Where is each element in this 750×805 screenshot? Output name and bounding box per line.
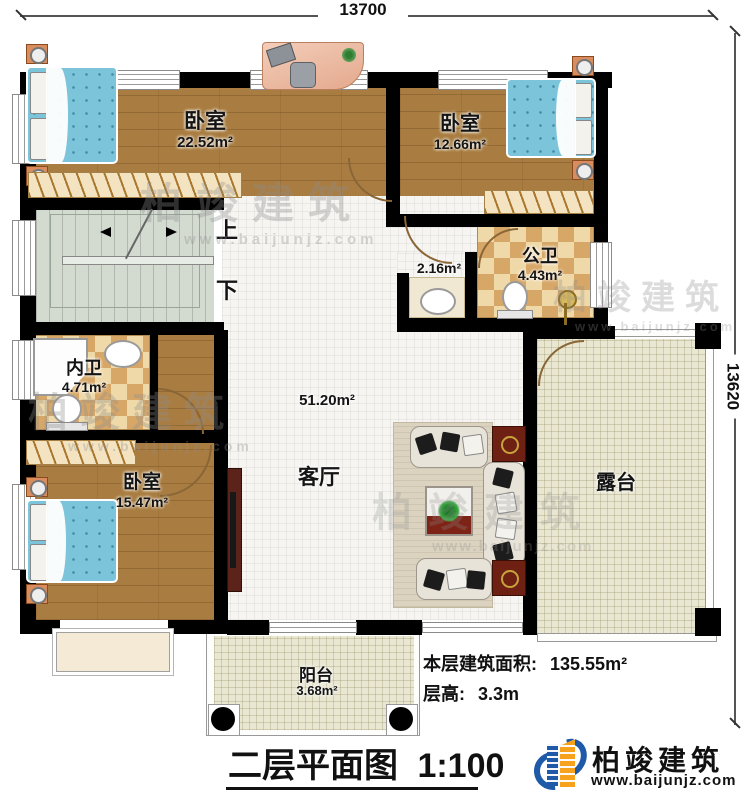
balcony-post <box>389 707 413 731</box>
bed-bottom-left <box>26 499 118 583</box>
balcony-sliding-door <box>269 622 357 633</box>
watermark-url: www.baijunjz.com <box>184 231 377 248</box>
logo-icon <box>534 736 586 794</box>
watermark: 柏竣建筑 www.baijunjz.com <box>553 270 735 334</box>
terrace-label: 露台 <box>592 472 640 495</box>
title-scale: 1:100 <box>417 747 504 785</box>
wall-living-left <box>214 330 228 634</box>
watermark-url: www.baijunjz.com <box>575 319 735 334</box>
dimension-width-label: 13700 <box>318 0 408 17</box>
floor-height-note: 层高: 3.3m <box>423 680 519 706</box>
side-table-top <box>492 426 526 462</box>
bed-sheet <box>556 80 576 156</box>
pillow <box>574 120 592 155</box>
toilet-tank-public <box>497 310 533 319</box>
sofa-top <box>410 426 488 468</box>
balcony-post <box>211 707 235 731</box>
floor-area-note: 本层建筑面积: 135.55m² <box>423 650 627 676</box>
desk-plant <box>342 48 356 62</box>
balcony-post-frame <box>208 704 240 736</box>
bay-window <box>56 632 170 672</box>
watermark: 柏竣建筑 www.baijunjz.com <box>28 380 253 454</box>
wall-living-bottom-left <box>227 620 269 635</box>
bedroom-top-left-label: 卧室 22.52m² <box>140 110 270 151</box>
room-name: 内卫 <box>38 358 130 379</box>
desk-chair <box>290 62 316 88</box>
logo-building-orange <box>560 739 575 787</box>
wardrobe-bedroom2 <box>484 190 594 214</box>
watermark-url: www.baijunjz.com <box>68 438 253 454</box>
living-bottom-window <box>422 622 523 633</box>
floor-area-label: 本层建筑面积: <box>423 654 537 674</box>
room-name: 卧室 <box>400 113 520 136</box>
title-text: 二层平面图 <box>228 747 398 785</box>
side-table-bottom <box>492 560 526 596</box>
wall-bedroom3-bottom-left <box>20 620 60 634</box>
watermark-url: www.baijunjz.com <box>432 538 596 555</box>
nightstand <box>572 160 594 180</box>
living-room-area-label: 51.20m² <box>286 392 368 409</box>
floor-height-label: 层高: <box>423 684 465 704</box>
floor-area-value: 135.55m² <box>550 654 627 674</box>
nightstand <box>572 56 594 76</box>
bedroom-bottom-left-label: 卧室 15.47m² <box>92 472 192 510</box>
bed-sheet <box>46 68 68 162</box>
toilet-bowl-public <box>502 281 528 313</box>
hall-area-label: 2.16m² <box>404 260 474 276</box>
dimension-height-label: 13620 <box>726 355 743 419</box>
logo-url: www.baijunjz.com <box>591 772 736 789</box>
stair-handrail <box>62 256 214 265</box>
room-area: 15.47m² <box>92 494 192 510</box>
wall-living-bottom-right <box>356 620 422 635</box>
nightstand <box>26 477 48 497</box>
floor-plan-canvas: 上 下 <box>0 0 750 805</box>
cushion <box>446 568 469 591</box>
cushion <box>462 434 485 457</box>
stair-arrow-left <box>100 227 111 237</box>
floor-height-value: 3.3m <box>478 684 519 704</box>
watermark: 柏竣建筑 www.baijunjz.com <box>372 480 596 555</box>
cushion <box>423 569 445 591</box>
balcony-post-frame <box>386 704 418 736</box>
watermark-text: 柏竣建筑 <box>553 270 735 319</box>
watermark-text: 柏竣建筑 <box>372 480 596 538</box>
wall-bedroom3-bottom-right <box>168 620 216 634</box>
bedroom-top-right-label: 卧室 12.66m² <box>400 113 520 152</box>
cushion <box>415 433 438 456</box>
terrace-railing-right <box>705 345 714 635</box>
terrace-railing-bottom <box>537 633 717 642</box>
room-area: 12.66m² <box>400 136 520 152</box>
page-title: 二层平面图 1:100 <box>228 738 504 787</box>
sofa-bottom <box>416 558 492 600</box>
bed-sheet <box>46 501 66 581</box>
cushion <box>466 570 486 590</box>
room-name: 公卫 <box>496 246 584 267</box>
wall-stair-bottom <box>20 322 224 335</box>
title-underline <box>226 787 478 790</box>
pillow <box>574 83 592 118</box>
sink-hall-alcove <box>420 288 456 315</box>
room-area: 22.52m² <box>140 134 270 151</box>
watermark-text: 柏竣建筑 <box>28 380 253 438</box>
balcony-area-label: 3.68m² <box>290 684 344 699</box>
living-room-label: 客厅 <box>288 466 350 490</box>
nightstand <box>26 584 48 604</box>
tv <box>230 492 236 568</box>
room-name: 卧室 <box>140 110 270 134</box>
cushion <box>440 432 461 453</box>
stairs-down-label: 下 <box>216 278 238 303</box>
window-left-2 <box>12 220 36 296</box>
watermark-text: 柏竣建筑 <box>140 170 377 231</box>
nightstand <box>26 44 48 64</box>
watermark: 柏竣建筑 www.baijunjz.com <box>140 170 377 248</box>
logo-building-blue <box>547 744 558 786</box>
bed-top-left <box>26 66 118 164</box>
room-name: 卧室 <box>92 472 192 494</box>
terrace-post-bottomright <box>695 608 721 636</box>
